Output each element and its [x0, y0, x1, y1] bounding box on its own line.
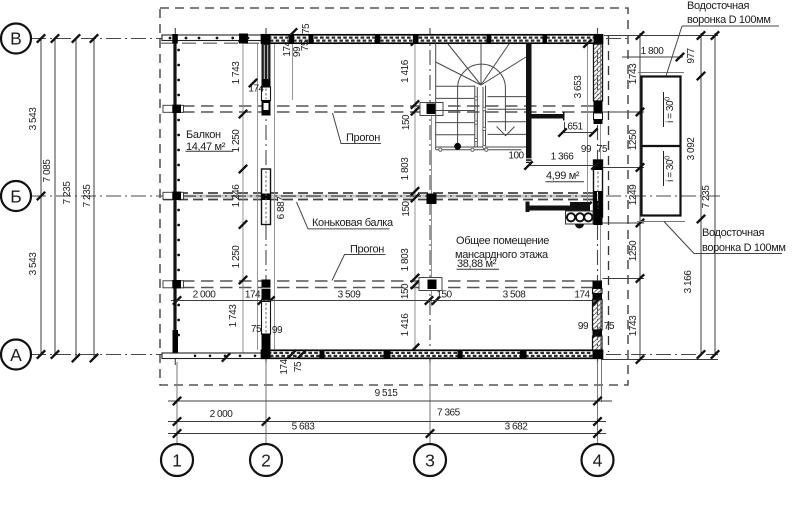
svg-text:воронка D 100мм: воронка D 100мм [687, 14, 771, 26]
svg-text:75: 75 [293, 361, 304, 372]
svg-text:150: 150 [436, 290, 452, 301]
svg-text:1: 1 [172, 451, 182, 471]
svg-text:В: В [10, 29, 22, 49]
svg-text:1743: 1743 [628, 315, 639, 336]
svg-text:3 509: 3 509 [338, 290, 362, 301]
svg-text:99: 99 [581, 144, 592, 155]
svg-text:3 543: 3 543 [28, 252, 39, 276]
svg-text:3 166: 3 166 [683, 270, 694, 294]
svg-text:150: 150 [401, 200, 412, 216]
svg-text:2: 2 [261, 451, 271, 471]
svg-text:Прогон: Прогон [350, 244, 384, 256]
svg-text:150: 150 [401, 114, 412, 130]
svg-text:Коньковая балка: Коньковая балка [312, 217, 394, 229]
svg-text:1 366: 1 366 [551, 152, 575, 163]
svg-text:Водосточная: Водосточная [687, 0, 749, 12]
svg-text:100: 100 [508, 151, 524, 162]
svg-text:1 416: 1 416 [400, 59, 411, 83]
svg-text:2 000: 2 000 [210, 409, 234, 420]
svg-text:75: 75 [251, 324, 262, 335]
svg-text:1 250: 1 250 [231, 129, 242, 153]
svg-text:Прогон: Прогон [346, 132, 380, 144]
svg-text:1 743: 1 743 [231, 61, 242, 85]
svg-text:6 887: 6 887 [276, 196, 287, 220]
svg-text:3 543: 3 543 [28, 107, 39, 131]
svg-text:i = 300: i = 300 [663, 156, 677, 182]
svg-text:2 000: 2 000 [193, 290, 217, 301]
svg-text:651: 651 [567, 122, 583, 133]
svg-text:1 246: 1 246 [231, 184, 242, 208]
svg-text:174: 174 [279, 358, 290, 374]
svg-text:3: 3 [425, 451, 435, 471]
svg-text:1743: 1743 [628, 63, 639, 84]
svg-text:99: 99 [272, 325, 283, 336]
svg-text:75: 75 [604, 321, 615, 332]
svg-text:7 085: 7 085 [42, 159, 53, 183]
svg-text:150: 150 [400, 283, 411, 299]
svg-text:Б: Б [10, 187, 21, 207]
svg-text:38,88 м²: 38,88 м² [457, 258, 497, 270]
svg-text:5 683: 5 683 [292, 422, 316, 433]
svg-text:1 416: 1 416 [400, 313, 411, 337]
svg-text:1 800: 1 800 [641, 46, 665, 57]
svg-text:3 508: 3 508 [503, 290, 527, 301]
svg-text:1250: 1250 [628, 240, 639, 261]
svg-text:Балкон: Балкон [186, 129, 221, 141]
svg-text:174: 174 [245, 290, 261, 301]
svg-text:99: 99 [578, 321, 589, 332]
svg-text:3 092: 3 092 [686, 137, 697, 161]
svg-text:7 365: 7 365 [437, 408, 461, 419]
svg-text:977: 977 [686, 47, 697, 63]
svg-text:3 653: 3 653 [573, 75, 584, 99]
svg-text:i = 300: i = 300 [663, 97, 677, 123]
svg-text:воронка D 100мм: воронка D 100мм [702, 242, 786, 254]
svg-text:9 515: 9 515 [375, 388, 399, 399]
svg-text:7 235: 7 235 [701, 185, 712, 209]
svg-text:1250: 1250 [628, 129, 639, 150]
svg-text:4: 4 [593, 451, 603, 471]
svg-text:1249: 1249 [628, 184, 639, 205]
svg-text:1 803: 1 803 [400, 157, 411, 181]
svg-text:1 743: 1 743 [228, 304, 239, 328]
svg-text:75: 75 [301, 23, 312, 34]
svg-text:174: 174 [574, 290, 590, 301]
svg-text:7 235: 7 235 [82, 184, 93, 208]
svg-text:75: 75 [597, 144, 608, 155]
svg-text:Общее помещение: Общее помещение [456, 235, 549, 247]
svg-text:3 682: 3 682 [505, 422, 529, 433]
svg-text:7 235: 7 235 [62, 181, 73, 205]
svg-text:А: А [10, 345, 22, 365]
svg-text:75: 75 [300, 40, 311, 51]
svg-text:4,99 м²: 4,99 м² [546, 170, 580, 182]
svg-text:1 803: 1 803 [400, 248, 411, 272]
svg-text:1 250: 1 250 [231, 245, 242, 269]
svg-text:Водосточная: Водосточная [702, 227, 764, 239]
